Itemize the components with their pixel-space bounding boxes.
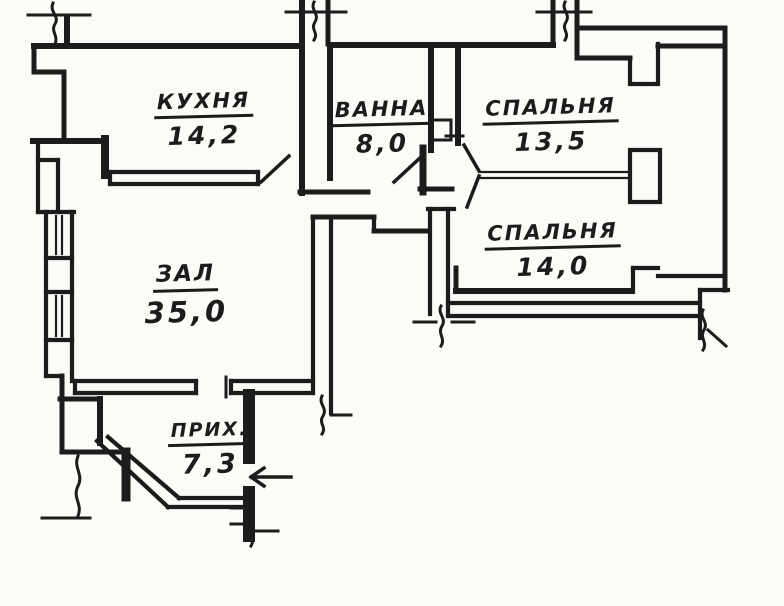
- room-label-bedroom-1: СПАЛЬНЯ 13,5: [482, 94, 620, 158]
- room-name: ПРИХ.: [167, 419, 251, 447]
- room-label-zal: ЗАЛ 35,0: [143, 261, 228, 330]
- room-name: ВАННА: [331, 97, 431, 128]
- walls: [33, 2, 728, 536]
- floor-plan-page: КУХНЯ 14,2 ВАННА 8,0 СПАЛЬНЯ 13,5 СПАЛЬН…: [0, 0, 784, 606]
- room-label-bath: ВАННА 8,0: [331, 97, 432, 160]
- room-area: 14,2: [154, 120, 254, 152]
- room-area: 14,0: [485, 250, 622, 283]
- room-area: 8,0: [332, 128, 432, 160]
- room-area: 7,3: [168, 448, 252, 481]
- room-name: СПАЛЬНЯ: [484, 219, 621, 251]
- window-symbols: [56, 216, 62, 336]
- entrance-arrow-icon: [251, 468, 291, 486]
- room-label-bedroom-2: СПАЛЬНЯ 14,0: [484, 219, 622, 283]
- room-area: 35,0: [144, 294, 228, 330]
- room-label-prihozhaya: ПРИХ. 7,3: [167, 419, 252, 481]
- floor-plan-drawing: [0, 0, 784, 606]
- room-name: ЗАЛ: [153, 261, 219, 293]
- room-name: КУХНЯ: [154, 89, 254, 120]
- room-label-kitchen: КУХНЯ 14,2: [154, 89, 255, 152]
- room-name: СПАЛЬНЯ: [482, 94, 619, 126]
- room-area: 13,5: [483, 125, 620, 158]
